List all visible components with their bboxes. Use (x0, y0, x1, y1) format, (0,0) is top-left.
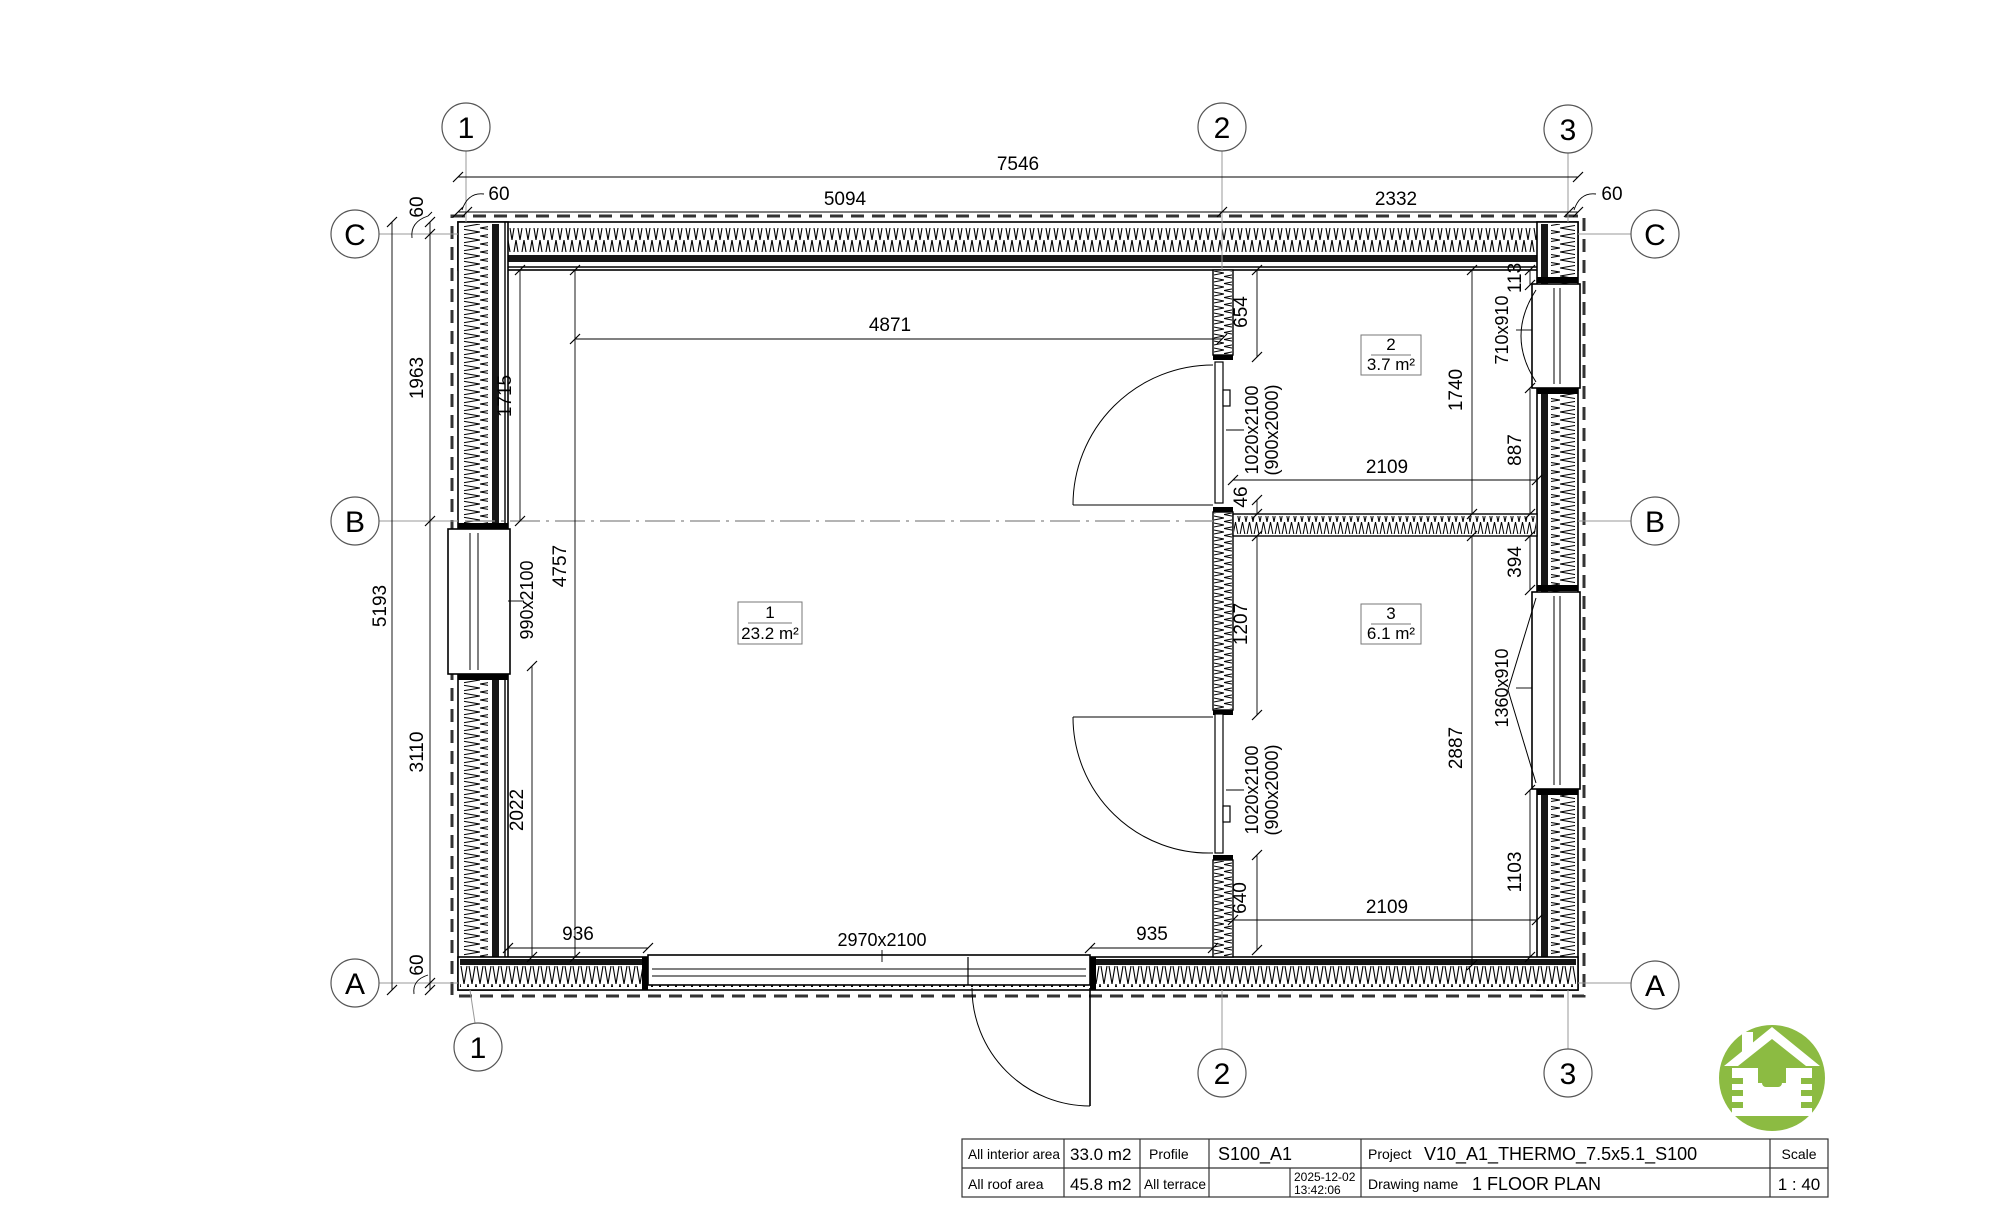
title-block: All interior area 33.0 m2 Profile S100_A… (962, 1139, 1828, 1197)
grid-bubble-bottom-3: 3 (1560, 1058, 1577, 1091)
dim-room2-height: 1740 (1446, 369, 1467, 411)
grid-bubble-top-2: 2 (1214, 112, 1231, 145)
grid-bubble-right-b: B (1645, 506, 1665, 539)
scale-value: 1 : 40 (1778, 1175, 1821, 1194)
grid-bubble-top-3: 3 (1560, 114, 1577, 147)
roof-area-value: 45.8 m2 (1070, 1175, 1131, 1194)
dim-room3-offset: 394 (1505, 546, 1526, 578)
grid-bubble-bottom-2: 2 (1214, 1058, 1231, 1091)
grid-bubble-right-c: C (1644, 219, 1666, 252)
dim-span-23: 2332 (1375, 189, 1417, 210)
project-label: Project (1368, 1146, 1412, 1162)
dim-offset-top: 60 (407, 196, 428, 217)
dim-wall2-mid: 1207 (1231, 603, 1252, 645)
room-1-area: 23.2 m² (741, 624, 799, 643)
dim-room1-lower-left: 2022 (507, 789, 528, 831)
room-label-3: 3 6.1 m² (1361, 604, 1421, 644)
dim-room1-upper-left: 1715 (495, 375, 516, 417)
dim-bottom-door: 2970x2100 (837, 930, 926, 950)
dim-door1-alt: (900x2000) (1262, 384, 1282, 475)
dim-span-cb: 1963 (407, 357, 428, 399)
drawing-name-value: 1 FLOOR PLAN (1472, 1174, 1601, 1194)
dim-offset-right: 60 (1601, 184, 1622, 205)
room-2-number: 2 (1386, 335, 1395, 354)
grid-lines (379, 150, 1631, 1049)
floor-plan-canvas: 7546 60 5094 2332 60 5193 60 1963 3110 6… (0, 0, 2000, 1200)
dim-win2-below: 887 (1505, 434, 1526, 466)
dim-wall2-lower: 640 (1230, 882, 1251, 914)
dim-span-ba: 3110 (407, 732, 428, 773)
dim-bottom-right: 935 (1136, 924, 1168, 945)
time-value: 13:42:06 (1294, 1183, 1341, 1197)
room-1-number: 1 (765, 603, 774, 622)
grid-bubble-left-b: B (345, 506, 365, 539)
dim-gap46: 46 (1231, 486, 1252, 507)
grid-bubble-left-a: A (345, 968, 365, 1001)
dim-wall2-upper: 654 (1231, 296, 1252, 328)
dim-offset-bottom: 60 (407, 954, 428, 975)
dim-win3-size: 1360x910 (1492, 648, 1512, 727)
dimension-lines (392, 177, 1596, 994)
dim-bottom-left: 936 (562, 924, 594, 945)
grid-bubble-left-c: C (344, 219, 366, 252)
dim-win3-below: 1103 (1505, 852, 1526, 893)
doors (972, 362, 1230, 1106)
dim-win2-offset: 113 (1505, 263, 1526, 293)
dim-offset-left: 60 (488, 184, 509, 205)
dim-left-window: 990x2100 (517, 560, 537, 639)
roof-area-label: All roof area (968, 1176, 1044, 1192)
project-value: V10_A1_THERMO_7.5x5.1_S100 (1424, 1144, 1697, 1165)
dim-door2-size: 1020x2100 (1242, 745, 1262, 834)
dim-room1-height: 4757 (550, 545, 571, 587)
room-2-area: 3.7 m² (1367, 355, 1416, 374)
profile-label: Profile (1149, 1146, 1189, 1162)
profile-value: S100_A1 (1218, 1144, 1292, 1165)
grid-bubble-top-1: 1 (458, 112, 475, 145)
dim-room3-height: 2887 (1446, 727, 1467, 769)
terrace-label: All terrace (1144, 1176, 1206, 1192)
dim-total-height: 5193 (370, 585, 391, 627)
scale-label: Scale (1781, 1146, 1816, 1162)
room-3-area: 6.1 m² (1367, 624, 1416, 643)
dimension-texts: 7546 60 5094 2332 60 5193 60 1963 3110 6… (370, 154, 1623, 976)
dim-total-width: 7546 (997, 154, 1039, 175)
drawing-name-label: Drawing name (1368, 1176, 1458, 1192)
date-value: 2025-12-02 (1294, 1170, 1356, 1184)
dim-door1-size: 1020x2100 (1242, 385, 1262, 474)
grid-bubble-right-a: A (1645, 970, 1665, 1003)
room-label-1: 1 23.2 m² (738, 602, 802, 644)
dim-win2-size: 710x910 (1492, 295, 1512, 364)
company-logo (1719, 1025, 1825, 1131)
dim-room3-width: 2109 (1366, 897, 1408, 918)
dim-room1-top: 4871 (869, 315, 911, 336)
dim-door2-alt: (900x2000) (1262, 744, 1282, 835)
dim-room2-width: 2109 (1366, 457, 1408, 478)
grid-bubble-bottom-1: 1 (470, 1032, 487, 1065)
room-3-number: 3 (1386, 604, 1395, 623)
dim-span-12: 5094 (824, 189, 867, 210)
interior-area-value: 33.0 m2 (1070, 1145, 1131, 1164)
interior-area-label: All interior area (968, 1146, 1060, 1162)
room-label-2: 2 3.7 m² (1361, 335, 1421, 375)
